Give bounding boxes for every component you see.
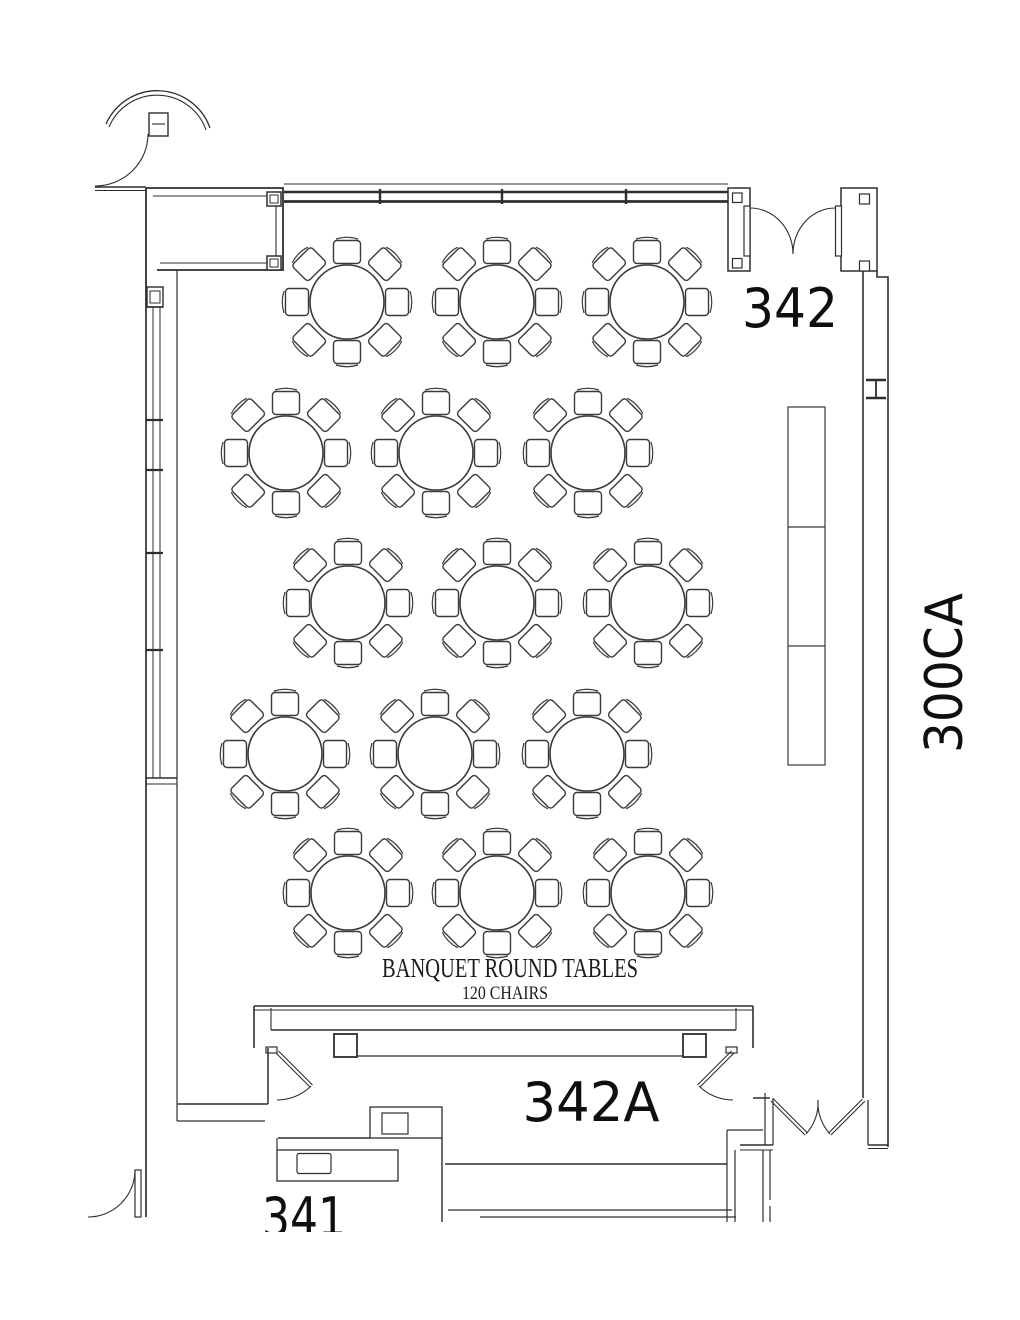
chair xyxy=(432,590,458,617)
table-top xyxy=(248,717,322,791)
chair xyxy=(432,880,458,907)
chair xyxy=(687,880,713,907)
chair xyxy=(387,880,413,907)
chair xyxy=(335,828,362,854)
double-door-bottom-right xyxy=(740,1093,865,1150)
chair xyxy=(282,289,308,316)
banquet-table-5 xyxy=(371,388,501,518)
banquet-table-10 xyxy=(220,689,350,819)
table-top xyxy=(460,566,534,640)
chair xyxy=(324,741,350,768)
chair xyxy=(335,932,362,958)
chair xyxy=(634,341,661,367)
table-top xyxy=(610,265,684,339)
chair xyxy=(273,388,300,414)
banquet-table-2 xyxy=(432,237,562,367)
table-top xyxy=(249,416,323,490)
chair xyxy=(687,590,713,617)
chair xyxy=(484,237,511,263)
chair xyxy=(475,440,501,467)
table-top xyxy=(460,856,534,930)
room-label-342A: 342A xyxy=(523,1071,660,1134)
chair xyxy=(484,341,511,367)
chair xyxy=(272,689,299,715)
left-window-wall xyxy=(146,270,177,1217)
seating-subtitle: 120 CHAIRS xyxy=(462,983,548,1004)
banquet-table-1 xyxy=(282,237,412,367)
chair xyxy=(574,793,601,819)
chair xyxy=(273,492,300,518)
banquet-table-8 xyxy=(432,538,562,668)
chair xyxy=(575,492,602,518)
banquet-table-13 xyxy=(283,828,413,958)
seating-title: BANQUET ROUND TABLES xyxy=(382,953,638,983)
chair xyxy=(221,440,247,467)
banquet-table-12 xyxy=(522,689,652,819)
chair xyxy=(536,590,562,617)
chair xyxy=(334,237,361,263)
banquet-table-14 xyxy=(432,828,562,958)
operable-partition xyxy=(254,1006,753,1057)
table-top xyxy=(311,856,385,930)
table-top xyxy=(611,856,685,930)
chair xyxy=(575,388,602,414)
chair xyxy=(272,793,299,819)
chair xyxy=(635,828,662,854)
chair xyxy=(523,440,549,467)
chair xyxy=(325,440,351,467)
chair xyxy=(634,237,661,263)
table-top xyxy=(460,265,534,339)
chair xyxy=(423,388,450,414)
banquet-table-6 xyxy=(523,388,653,518)
chair xyxy=(432,289,458,316)
floor-plan-canvas: 342 342A 341 300CA BANQUET ROUND TABLES … xyxy=(0,0,1020,1320)
chair xyxy=(422,793,449,819)
chair xyxy=(386,289,412,316)
chair xyxy=(484,642,511,668)
banquet-tables-layer xyxy=(220,237,713,958)
entry-door-top-left xyxy=(95,91,210,191)
partition-door-right xyxy=(698,1051,735,1100)
chair xyxy=(583,590,609,617)
chair xyxy=(536,289,562,316)
chair xyxy=(283,590,309,617)
banquet-table-4 xyxy=(221,388,351,518)
corridor-label-300CA: 300CA xyxy=(915,593,975,753)
table-top xyxy=(398,717,472,791)
chair xyxy=(335,642,362,668)
right-wall xyxy=(863,271,888,1149)
chair xyxy=(583,880,609,907)
double-door-342 xyxy=(728,188,877,271)
top-wall-band xyxy=(284,184,728,204)
chair xyxy=(635,932,662,958)
chair xyxy=(686,289,712,316)
banquet-table-7 xyxy=(283,538,413,668)
banquet-table-9 xyxy=(583,538,713,668)
buffet-table xyxy=(788,407,825,765)
chair xyxy=(335,538,362,564)
chair xyxy=(484,828,511,854)
chair xyxy=(635,538,662,564)
banquet-table-3 xyxy=(582,237,712,367)
chair xyxy=(626,741,652,768)
banquet-table-11 xyxy=(370,689,500,819)
room-label-342: 342 xyxy=(742,277,838,340)
table-top xyxy=(311,566,385,640)
chair xyxy=(574,689,601,715)
table-top xyxy=(611,566,685,640)
table-top xyxy=(551,416,625,490)
chair xyxy=(635,642,662,668)
vestibule xyxy=(146,188,283,307)
chair xyxy=(484,538,511,564)
banquet-table-15 xyxy=(583,828,713,958)
chair xyxy=(627,440,653,467)
chair xyxy=(582,289,608,316)
chair xyxy=(422,689,449,715)
chair xyxy=(387,590,413,617)
table-top xyxy=(310,265,384,339)
partition-door-left xyxy=(276,1051,313,1100)
table-top xyxy=(550,717,624,791)
chair xyxy=(474,741,500,768)
chair xyxy=(370,741,396,768)
chair xyxy=(334,341,361,367)
room-label-341: 341 xyxy=(262,1186,346,1249)
table-top xyxy=(399,416,473,490)
chair xyxy=(220,741,246,768)
chair xyxy=(536,880,562,907)
chair xyxy=(423,492,450,518)
chair xyxy=(522,741,548,768)
chair xyxy=(283,880,309,907)
door-bottom-left xyxy=(88,1170,141,1217)
floor-plan-page: 342 342A 341 300CA BANQUET ROUND TABLES … xyxy=(0,0,1020,1320)
chair xyxy=(371,440,397,467)
